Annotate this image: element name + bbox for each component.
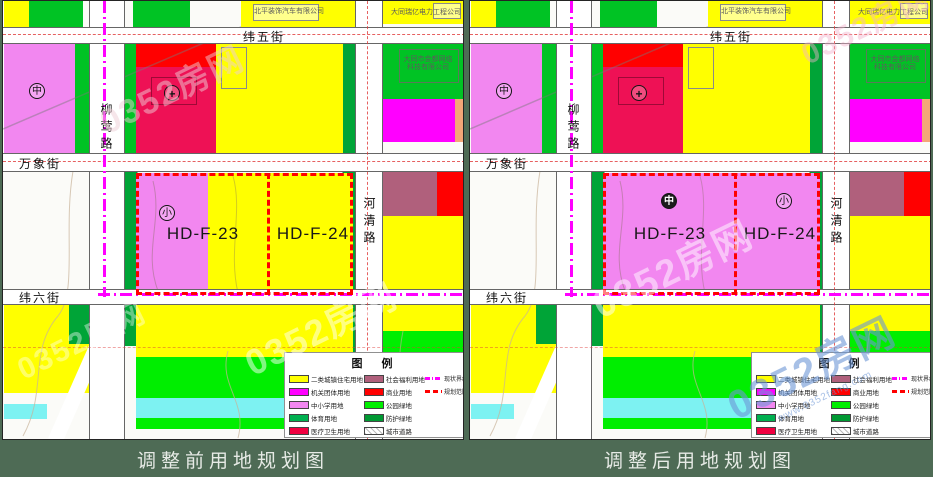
green-strip <box>69 304 89 344</box>
commercial-block <box>603 42 683 67</box>
street-label-weiliu: 纬六街 <box>19 289 61 306</box>
legend-swatch-road <box>364 427 384 435</box>
green-block <box>29 1 83 27</box>
road-centerline <box>3 161 464 162</box>
legend-swatch <box>289 401 309 409</box>
legend-swatch <box>364 375 384 383</box>
primary-school-symbol: 小 <box>159 205 175 221</box>
legend-item: 商业用地 <box>364 385 425 398</box>
legend-swatch <box>364 401 384 409</box>
welfare-block <box>848 170 904 216</box>
company-annotation: 北平装饰汽车有限公司 <box>254 8 324 16</box>
legend-swatch <box>364 414 384 422</box>
legend-item: 商业用地 <box>831 385 892 398</box>
boundary-dashed-line <box>470 347 931 348</box>
residential-block <box>471 1 496 27</box>
green-block <box>600 1 657 27</box>
company-annotation: 北平装饰汽车有限公司 <box>721 8 791 16</box>
legend-item: 体育用地 <box>756 411 831 424</box>
middle-school-symbol: 中 <box>661 193 677 209</box>
road-weiwu <box>3 27 464 44</box>
plot-label-hdf23: HD-F-23 <box>618 224 722 244</box>
legend-swatch <box>756 401 776 409</box>
residential-block <box>848 216 931 331</box>
building-outline <box>221 47 247 89</box>
legend-item: 二类城镇住宅用地 <box>289 372 364 385</box>
legend-swatch-road <box>831 427 851 435</box>
panel-before-map: 北平装饰汽车有限公司 大同瑞亿电力工程公司 大同市金都网络 科技有限公司 HD-… <box>2 0 464 440</box>
middle-school-symbol: 中 <box>29 83 45 99</box>
road-centerline <box>3 34 464 35</box>
residential-block <box>136 303 353 357</box>
street-label-heqing: 河清路 <box>828 197 845 248</box>
legend-line-item: 现状界线 <box>892 372 930 385</box>
legend-item: 社会福利用地 <box>364 372 425 385</box>
hospital-symbol: + <box>631 85 647 101</box>
legend-swatch <box>289 427 309 435</box>
residential-block <box>603 303 820 357</box>
legend-item: 城市道路 <box>364 424 425 437</box>
legend-item: 公园绿地 <box>364 398 425 411</box>
legend-item: 中小学用地 <box>289 398 364 411</box>
road-wanxiang <box>470 153 931 172</box>
water-strip <box>471 404 514 419</box>
caption-after: 调整后用地规划图 <box>469 446 931 473</box>
primary-school-symbol: 小 <box>776 193 792 209</box>
legend-item: 防护绿地 <box>831 411 892 424</box>
legend-line-item: 规划范围 <box>892 385 930 398</box>
caption-bar: 调整前用地规划图 调整后用地规划图 <box>0 440 933 477</box>
legend-swatch <box>831 401 851 409</box>
legend-swatch <box>756 375 776 383</box>
legend-item: 医疗卫生用地 <box>756 424 831 437</box>
institution-block <box>381 99 455 142</box>
plot-label-hdf24: HD-F-24 <box>261 224 365 244</box>
road-centerline <box>470 34 931 35</box>
institution-block <box>848 99 922 142</box>
green-block <box>133 1 190 27</box>
boundary-dashed-line <box>3 347 464 348</box>
road-liuying <box>89 1 125 440</box>
legend-swatch <box>831 414 851 422</box>
legend-item: 中小学用地 <box>756 398 831 411</box>
green-strip <box>536 304 556 344</box>
street-label-wanxiang: 万象街 <box>486 155 528 172</box>
legend-swatch <box>289 388 309 396</box>
street-label-weiwu: 纬五街 <box>243 28 285 45</box>
legend-item: 社会福利用地 <box>831 372 892 385</box>
company-annotation: 大同瑞亿电力工程公司 <box>858 9 928 17</box>
street-label-weiwu: 纬五街 <box>710 28 752 45</box>
legend-item: 体育用地 <box>289 411 364 424</box>
legend-swatch <box>289 414 309 422</box>
commercial-block <box>136 42 216 67</box>
legend-item: 城市道路 <box>831 424 892 437</box>
street-label-heqing: 河清路 <box>361 197 378 248</box>
legend-line-swatch <box>425 390 442 393</box>
plan-comparison-image: 北平装饰汽车有限公司 大同瑞亿电力工程公司 大同市金都网络 科技有限公司 HD-… <box>0 0 933 477</box>
hospital-symbol: + <box>164 85 180 101</box>
panel-after-map: 北平装饰汽车有限公司 大同瑞亿电力工程公司 大同市金都网络 科技有限公司 HD-… <box>469 0 931 440</box>
legend-line-swatch <box>892 377 909 380</box>
legend-line-item: 现状界线 <box>425 372 463 385</box>
legend-swatch <box>289 375 309 383</box>
building-outline <box>688 47 714 89</box>
legend-title: 图 例 <box>756 355 930 371</box>
road-liuying <box>556 1 592 440</box>
legend-swatch <box>756 427 776 435</box>
caption-before: 调整前用地规划图 <box>2 446 464 473</box>
company-annotation: 大同瑞亿电力工程公司 <box>391 9 461 17</box>
legend: 图 例 二类城镇住宅用地 机关团体用地 中小学用地 体育用地 医疗卫生用地 社会… <box>284 352 464 438</box>
green-strip <box>542 42 556 153</box>
legend-item: 二类城镇住宅用地 <box>756 372 831 385</box>
company-annotation: 大同市金都网络 科技有限公司 <box>867 56 923 72</box>
street-label-wanxiang: 万象街 <box>19 155 61 172</box>
legend-line-swatch <box>892 390 909 393</box>
plot-label-hdf24: HD-F-24 <box>728 224 832 244</box>
road-centerline <box>470 161 931 162</box>
street-label-liuying: 柳莺路 <box>565 103 582 154</box>
salmon-block <box>922 99 931 142</box>
green-block <box>496 1 550 27</box>
water-strip <box>4 404 47 419</box>
legend-swatch <box>756 414 776 422</box>
commercial-block <box>437 170 464 216</box>
commercial-block <box>904 170 931 216</box>
welfare-block <box>381 170 437 216</box>
legend-swatch <box>831 388 851 396</box>
legend-swatch <box>831 375 851 383</box>
legend-item: 防护绿地 <box>364 411 425 424</box>
legend-item: 医疗卫生用地 <box>289 424 364 437</box>
legend-line-item: 规划范围 <box>425 385 463 398</box>
street-label-weiliu: 纬六街 <box>486 289 528 306</box>
legend-swatch <box>364 388 384 396</box>
legend-swatch <box>756 388 776 396</box>
legend-item: 公园绿地 <box>831 398 892 411</box>
green-strip <box>75 42 89 153</box>
legend-item: 机关团体用地 <box>289 385 364 398</box>
legend-line-swatch <box>425 377 442 380</box>
residential-block <box>381 216 464 331</box>
salmon-block <box>455 99 464 142</box>
plot-label-hdf23: HD-F-23 <box>151 224 255 244</box>
road-wanxiang <box>3 153 464 172</box>
middle-school-symbol: 中 <box>496 83 512 99</box>
legend-item: 机关团体用地 <box>756 385 831 398</box>
legend: 图 例 二类城镇住宅用地 机关团体用地 中小学用地 体育用地 医疗卫生用地 社会… <box>751 352 931 438</box>
company-annotation: 大同市金都网络 科技有限公司 <box>400 56 456 72</box>
road-weiwu <box>470 27 931 44</box>
street-label-liuying: 柳莺路 <box>98 103 115 154</box>
legend-title: 图 例 <box>289 355 463 371</box>
residential-block <box>4 1 29 27</box>
